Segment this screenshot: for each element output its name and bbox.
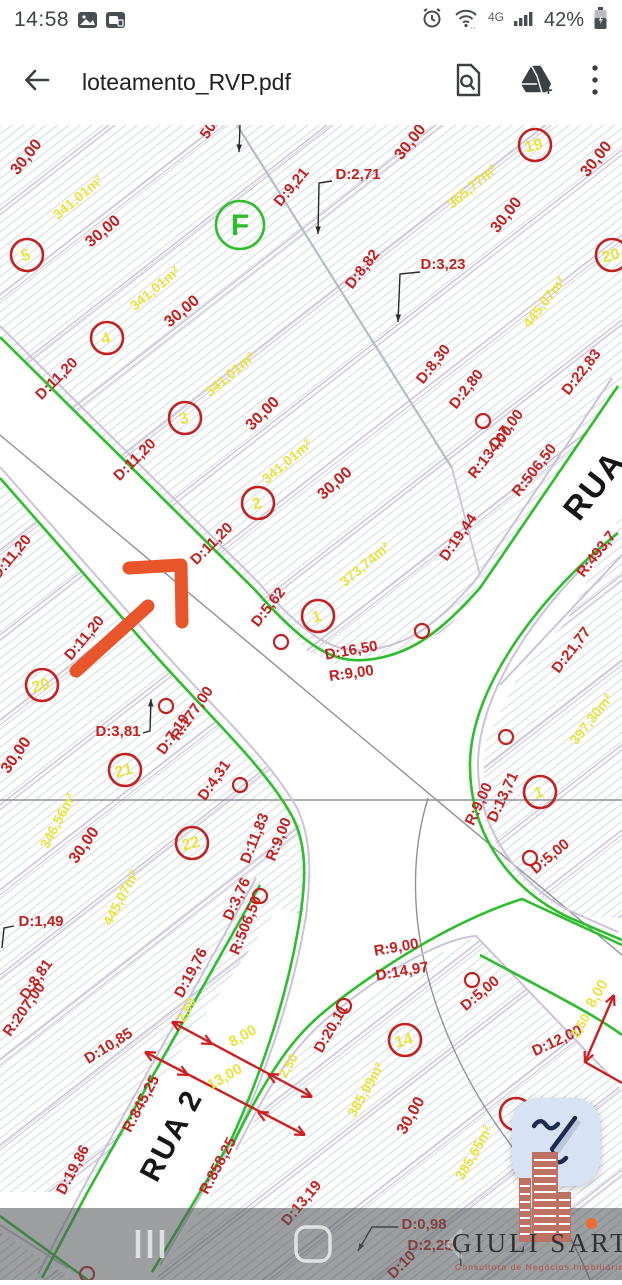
map-label: D:3,81 <box>95 723 140 740</box>
back-button[interactable] <box>22 65 52 100</box>
map-label: F <box>231 209 249 242</box>
map-label: D:1,49 <box>18 913 63 930</box>
add-to-drive-button[interactable]: + <box>518 63 556 102</box>
document-title: loteamento_RVP.pdf <box>82 69 452 96</box>
map-label: D:2,71 <box>335 166 380 183</box>
map-label: D:3,23 <box>420 256 465 273</box>
signal-strength-icon <box>513 8 535 33</box>
status-bar: 14:58 ₊₊ 4G 42% <box>0 0 622 40</box>
home-button[interactable] <box>296 1227 330 1261</box>
annotate-fab[interactable] <box>512 1098 600 1186</box>
signature-pen-icon <box>512 1098 600 1186</box>
photo-notification-icon <box>78 12 97 28</box>
alarm-icon <box>420 6 444 35</box>
svg-text:+: + <box>544 82 553 97</box>
clock-time: 14:58 <box>14 8 69 32</box>
battery-icon <box>593 6 608 35</box>
app-bar: loteamento_RVP.pdf + <box>0 40 622 125</box>
overflow-menu-button[interactable] <box>590 63 600 102</box>
wifi-icon: ₊₊ <box>453 6 479 35</box>
recents-button[interactable] <box>138 1230 162 1258</box>
battery-percent-label: 42% <box>544 9 584 32</box>
find-in-document-button[interactable] <box>452 62 484 103</box>
back-nav-button[interactable] <box>448 1230 462 1258</box>
network-type-label: 4G <box>488 10 504 24</box>
navigation-bar <box>0 1208 622 1280</box>
screen-record-notification-icon <box>106 12 125 28</box>
svg-text:₊₊: ₊₊ <box>470 25 476 30</box>
